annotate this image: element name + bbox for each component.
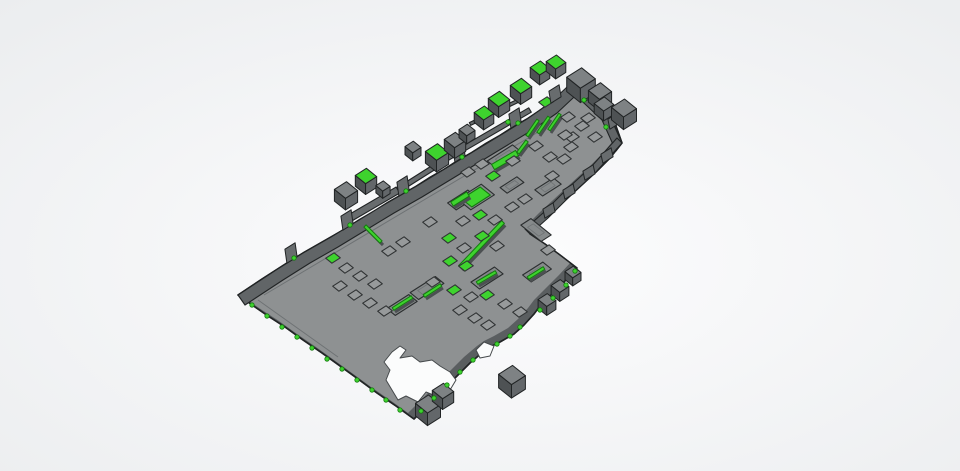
wall-stud-green[interactable] <box>292 256 296 260</box>
wall-stud-green[interactable] <box>471 358 475 362</box>
wall-stud-green[interactable] <box>551 296 555 300</box>
wall-stud-green[interactable] <box>582 98 586 102</box>
wall-stud-green[interactable] <box>295 335 299 339</box>
wall-stud-green[interactable] <box>508 334 512 338</box>
wall-stud-green[interactable] <box>518 325 522 329</box>
wall-stud-green[interactable] <box>506 120 510 124</box>
wall-stud-green[interactable] <box>458 370 462 374</box>
model-canvas[interactable] <box>0 0 960 471</box>
wall-stud-green[interactable] <box>604 125 608 129</box>
wall-stud-green[interactable] <box>538 308 542 312</box>
wall-stud-green[interactable] <box>564 283 568 287</box>
wall-stud-green[interactable] <box>265 314 269 318</box>
wall-stud-green[interactable] <box>573 269 577 273</box>
wall-stud-green[interactable] <box>340 367 344 371</box>
wall-stud-green[interactable] <box>310 346 314 350</box>
wall-stud-green[interactable] <box>325 357 329 361</box>
wall-stud-green[interactable] <box>460 155 464 159</box>
wall-stud-green[interactable] <box>419 409 423 413</box>
wall-stud-green[interactable] <box>250 303 254 307</box>
wall-stud-green[interactable] <box>495 342 499 346</box>
wall-stud-green[interactable] <box>355 378 359 382</box>
wall-stud-green[interactable] <box>348 223 352 227</box>
wall-stud-green[interactable] <box>404 189 408 193</box>
wall-stud-green[interactable] <box>398 408 402 412</box>
wall-stud-green[interactable] <box>384 398 388 402</box>
wall-stud-green[interactable] <box>516 121 520 125</box>
3d-viewport[interactable] <box>0 0 960 471</box>
wall-stud-green[interactable] <box>445 383 449 387</box>
wall-stud-green[interactable] <box>280 325 284 329</box>
wall-stud-green[interactable] <box>432 396 436 400</box>
wall-stud-green[interactable] <box>370 388 374 392</box>
